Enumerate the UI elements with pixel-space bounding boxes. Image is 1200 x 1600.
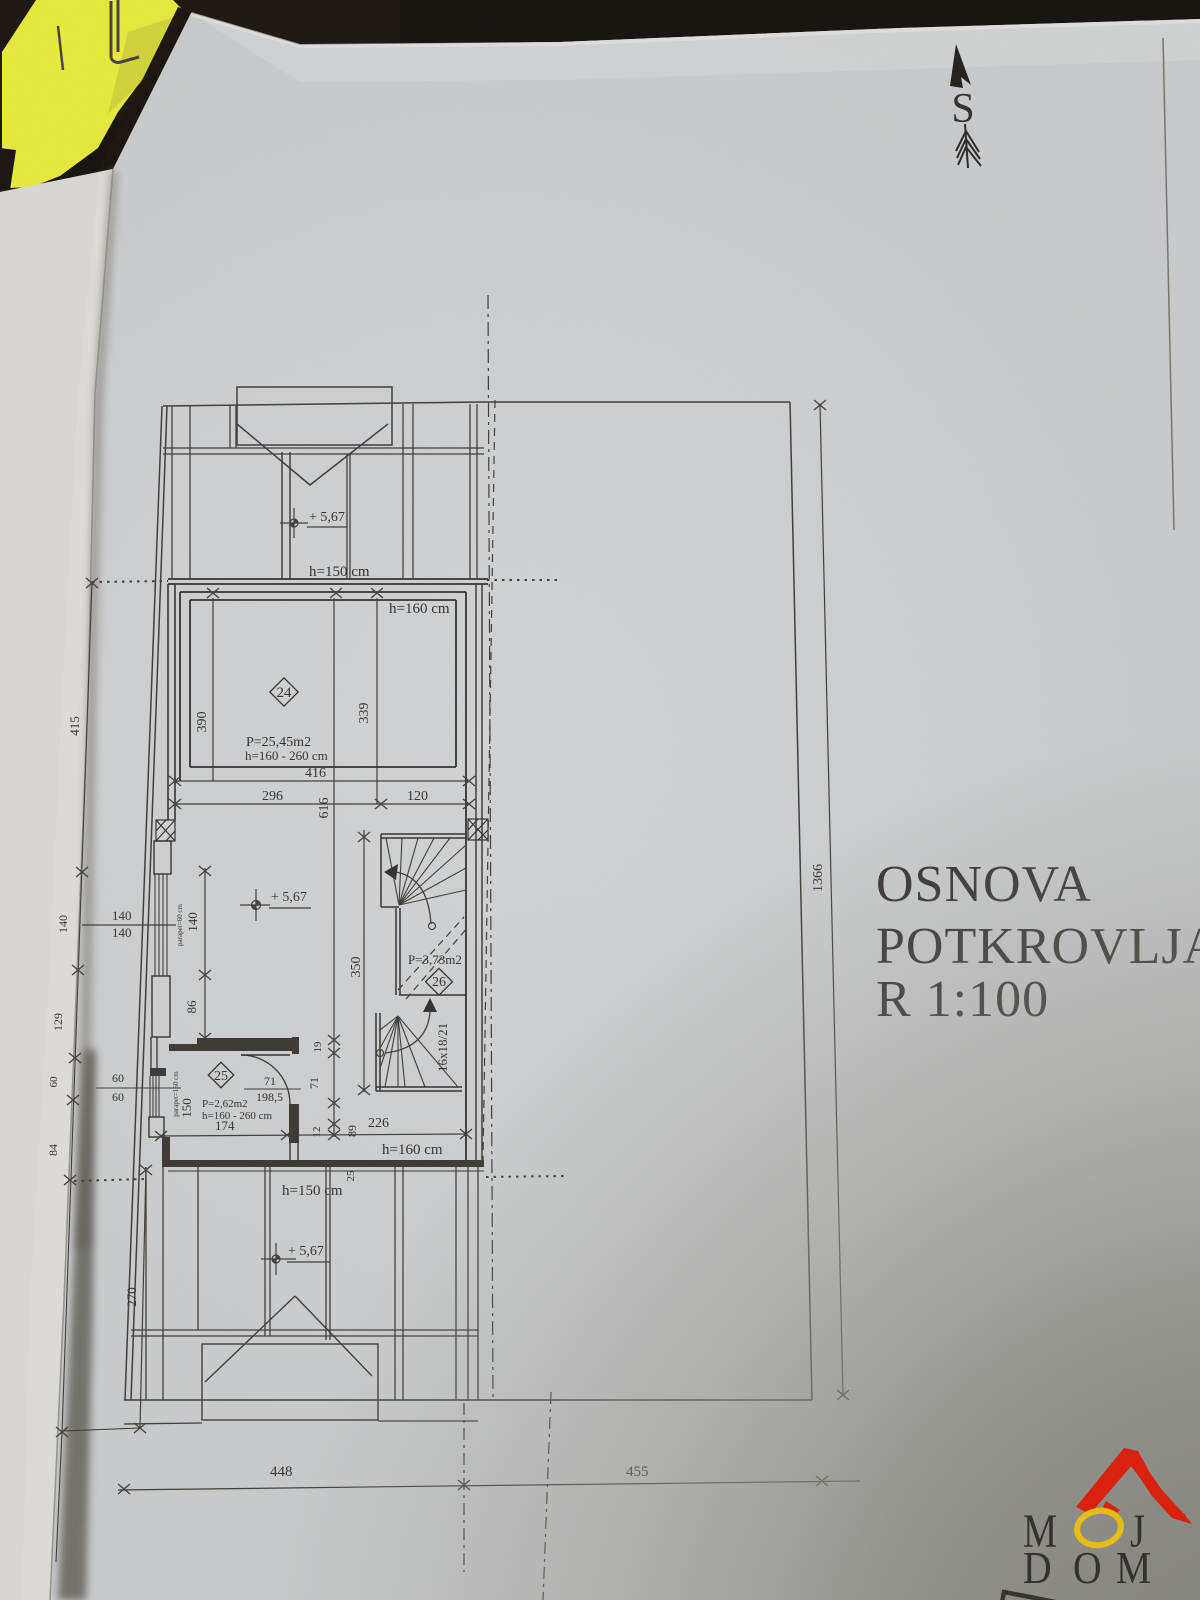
svg-text:D: D: [1023, 1543, 1052, 1593]
svg-text:M: M: [1116, 1543, 1151, 1593]
svg-text:O: O: [1073, 1543, 1102, 1593]
